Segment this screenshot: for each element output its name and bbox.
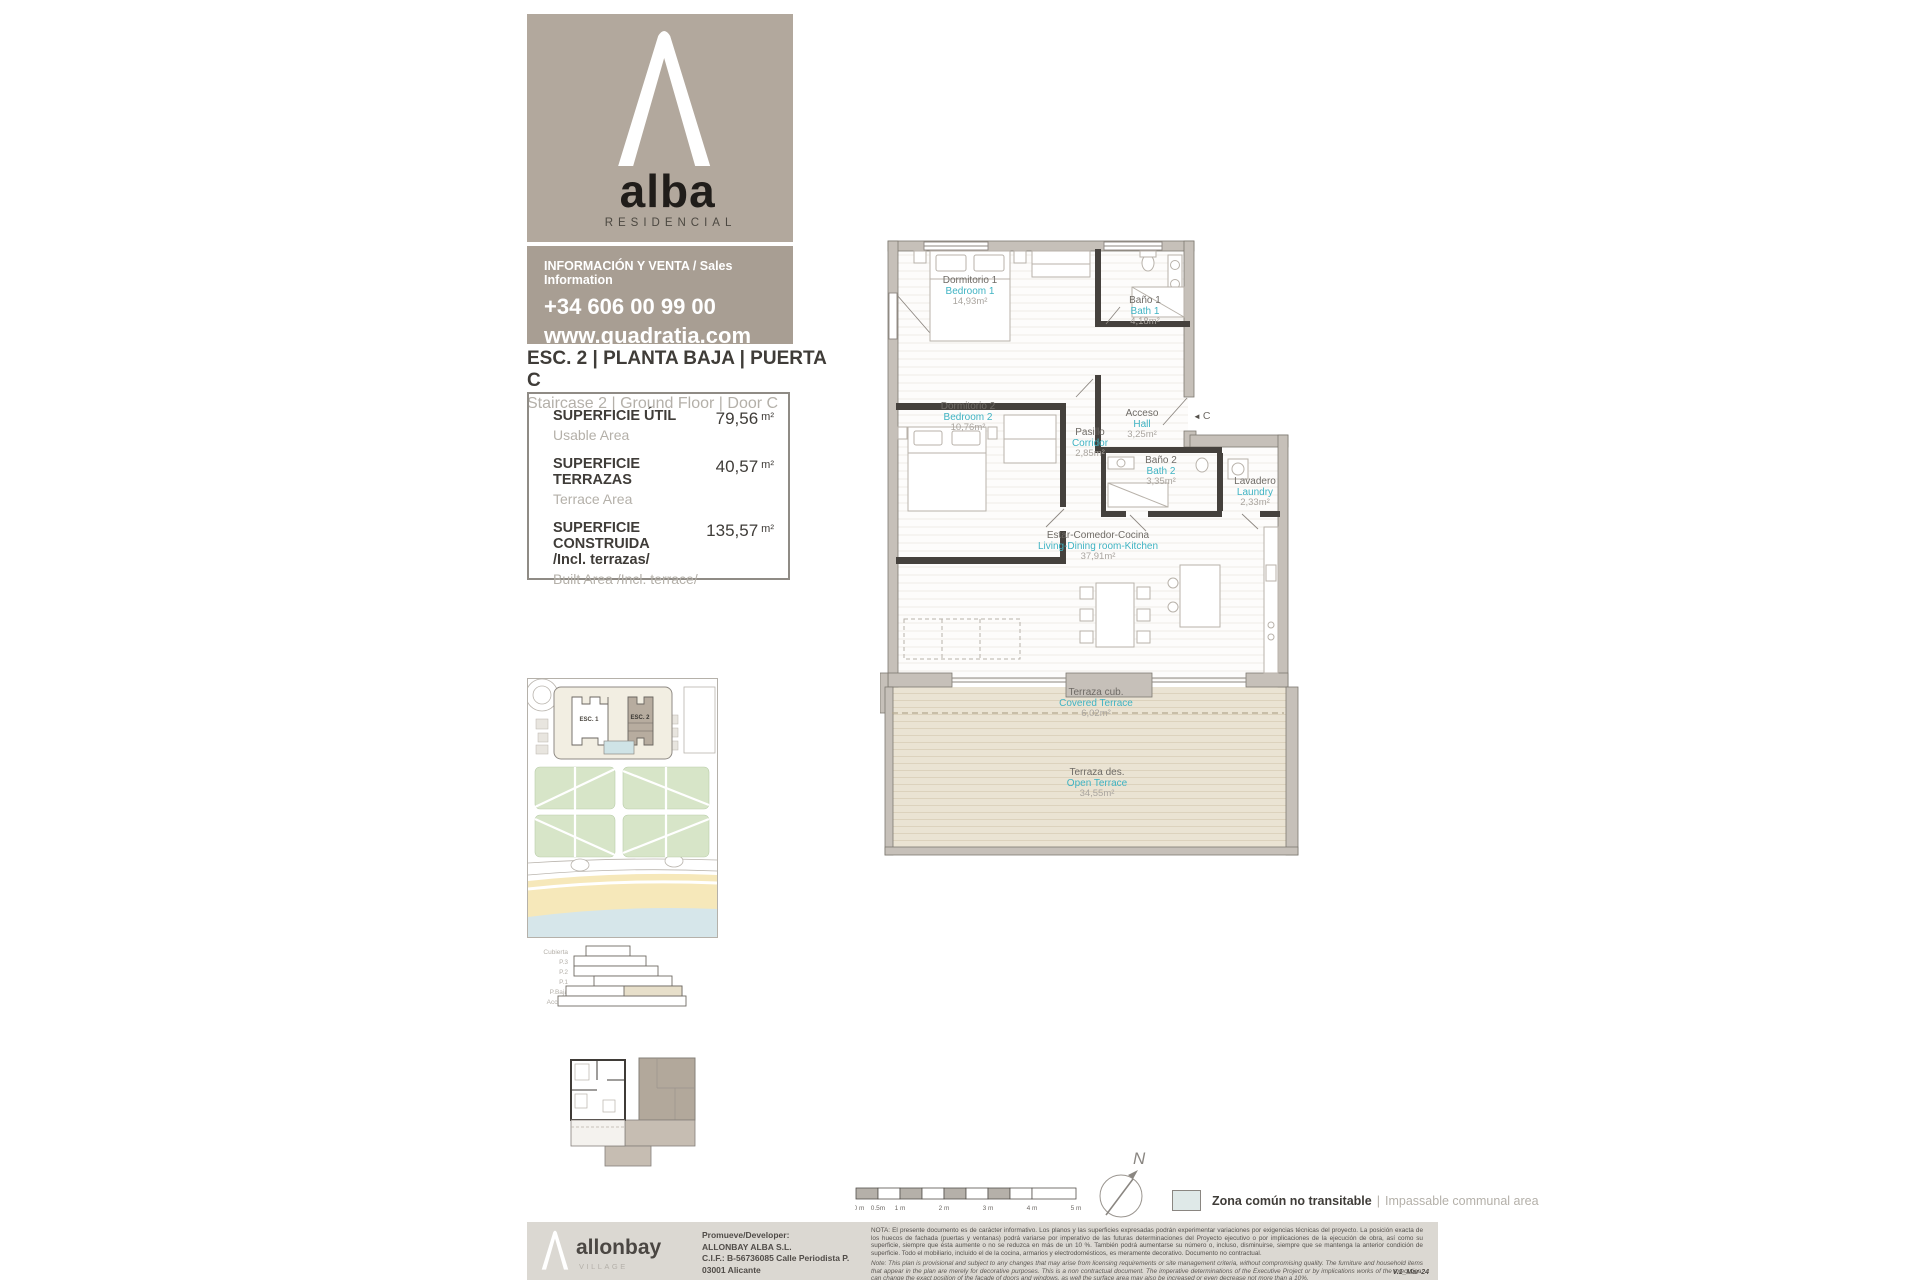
svg-text:0.5m: 0.5m — [871, 1205, 885, 1212]
brand-block: alba RESIDENCIAL INFORMACIÓN Y VENTA / S… — [527, 14, 793, 344]
svg-text:P.2: P.2 — [559, 969, 568, 976]
legend-label-en: Impassable communal area — [1385, 1194, 1539, 1208]
svg-text:5 m: 5 m — [1071, 1205, 1082, 1212]
sales-info-label: INFORMACIÓN Y VENTA / Sales Information — [544, 259, 793, 287]
area-row-built: SUPERFICIE CONSTRUIDA /Incl. terrazas/ B… — [553, 520, 774, 587]
building-section-svg: Cubierta P.3 P.2 P.1 P.Baja Acceso — [522, 942, 707, 1017]
note-en: Note: This plan is provisional and subje… — [871, 1260, 1423, 1280]
key-plan-other-unit — [639, 1058, 695, 1120]
svg-text:Cubierta: Cubierta — [543, 949, 568, 956]
entrance-letter: C — [1203, 410, 1211, 422]
area-label-es: SUPERFICIE ÚTIL — [553, 408, 676, 424]
allonbay-name: allonbay — [576, 1236, 661, 1260]
area-row-usable: SUPERFICIE ÚTIL Usable Area 79,56m² — [553, 408, 774, 443]
legend-swatch — [1172, 1190, 1201, 1211]
site-plan-map: ESC. 1 ESC. 2 — [527, 678, 718, 938]
svg-text:P.3: P.3 — [559, 959, 568, 966]
area-value: 135,57m² — [706, 520, 774, 587]
developer-label: Promueve/Developer: — [702, 1230, 849, 1242]
brand-logo-panel: alba RESIDENCIAL — [527, 14, 793, 242]
entrance-marker: ◄C — [1193, 410, 1211, 422]
unit-title-es: ESC. 2 | PLANTA BAJA | PUERTA C — [527, 348, 827, 392]
key-plan-svg — [555, 1038, 720, 1173]
note-es: NOTA: El presente documento es de caráct… — [871, 1227, 1423, 1257]
building-esc1-label: ESC. 1 — [579, 717, 599, 723]
legal-notes: NOTA: El presente documento es de caráct… — [871, 1227, 1423, 1280]
developer-name: ALLONBAY ALBA S.L. — [702, 1242, 849, 1254]
apartment-floor-plan — [880, 235, 1320, 875]
section-floors — [558, 946, 686, 1006]
building-esc2 — [628, 697, 653, 745]
north-compass: N — [1093, 1146, 1165, 1229]
developer-info: Promueve/Developer: ALLONBAY ALBA S.L. C… — [702, 1230, 849, 1276]
version-tag: V.1_Mar-24 — [1393, 1269, 1429, 1276]
scale-bar-svg: 0 m 0.5m 1 m 2 m 3 m 4 m 5 m — [855, 1186, 1087, 1214]
alba-logo-icon — [612, 30, 716, 166]
surface-area-box: SUPERFICIE ÚTIL Usable Area 79,56m² SUPE… — [527, 392, 790, 580]
svg-text:3 m: 3 m — [983, 1205, 994, 1212]
site-plan-svg: ESC. 1 ESC. 2 — [528, 679, 717, 937]
sales-phone[interactable]: +34 606 00 99 00 — [544, 294, 793, 320]
legend-label-es: Zona común no transitable — [1212, 1194, 1372, 1208]
scale-labels: 0 m 0.5m 1 m 2 m 3 m 4 m 5 m — [855, 1205, 1081, 1212]
area-label-es: SUPERFICIE TERRAZAS — [553, 456, 716, 488]
svg-text:0 m: 0 m — [855, 1205, 864, 1212]
sales-info-panel: INFORMACIÓN Y VENTA / Sales Information … — [527, 246, 793, 344]
area-label-es: SUPERFICIE CONSTRUIDA — [553, 520, 706, 552]
developer-cif: C.I.F.: B-56736085 Calle Periodista P. — [702, 1253, 849, 1265]
svg-text:4 m: 4 m — [1027, 1205, 1038, 1212]
terrace-floor — [891, 687, 1293, 855]
legend: Zona común no transitable | Impassable c… — [1172, 1190, 1539, 1211]
legend-separator: | — [1377, 1194, 1380, 1208]
svg-text:1 m: 1 m — [895, 1205, 906, 1212]
brand-tagline: RESIDENCIAL — [605, 217, 737, 229]
area-label-es2: /Incl. terrazas/ — [553, 552, 706, 568]
north-label: N — [1133, 1149, 1146, 1168]
compass-icon: N — [1093, 1146, 1165, 1224]
area-label-en: Usable Area — [553, 427, 676, 443]
scale-bar: 0 m 0.5m 1 m 2 m 3 m 4 m 5 m — [855, 1186, 1087, 1219]
svg-text:2 m: 2 m — [939, 1205, 950, 1212]
key-plan-thumbnail — [555, 1038, 720, 1173]
section-highlighted-floor — [624, 986, 682, 996]
building-section-diagram: Cubierta P.3 P.2 P.1 P.Baja Acceso — [522, 942, 707, 1017]
adjacent-building — [684, 687, 715, 753]
brand-name: alba — [620, 164, 716, 218]
area-value: 79,56m² — [716, 408, 774, 443]
developer-city: 03001 Alicante — [702, 1265, 849, 1277]
sales-website[interactable]: www.quadratia.com — [544, 323, 793, 349]
floor-plan-svg — [880, 235, 1320, 875]
area-value: 40,57m² — [716, 456, 774, 507]
area-label-en: Built Area /Incl. terrace/ — [553, 571, 706, 587]
area-row-terrace: SUPERFICIE TERRAZAS Terrace Area 40,57m² — [553, 456, 774, 507]
svg-text:P.1: P.1 — [559, 979, 568, 986]
footer: allonbay VILLAGE Promueve/Developer: ALL… — [527, 1222, 1438, 1280]
area-label-en: Terrace Area — [553, 491, 716, 507]
entrance-arrow-icon: ◄ — [1193, 412, 1201, 421]
building-esc2-label: ESC. 2 — [630, 715, 650, 721]
allonbay-sub: VILLAGE — [579, 1262, 628, 1271]
allonbay-logo-icon — [540, 1230, 570, 1270]
pool — [604, 741, 634, 754]
floorplan-sheet: alba RESIDENCIAL INFORMACIÓN Y VENTA / S… — [0, 0, 1920, 1280]
